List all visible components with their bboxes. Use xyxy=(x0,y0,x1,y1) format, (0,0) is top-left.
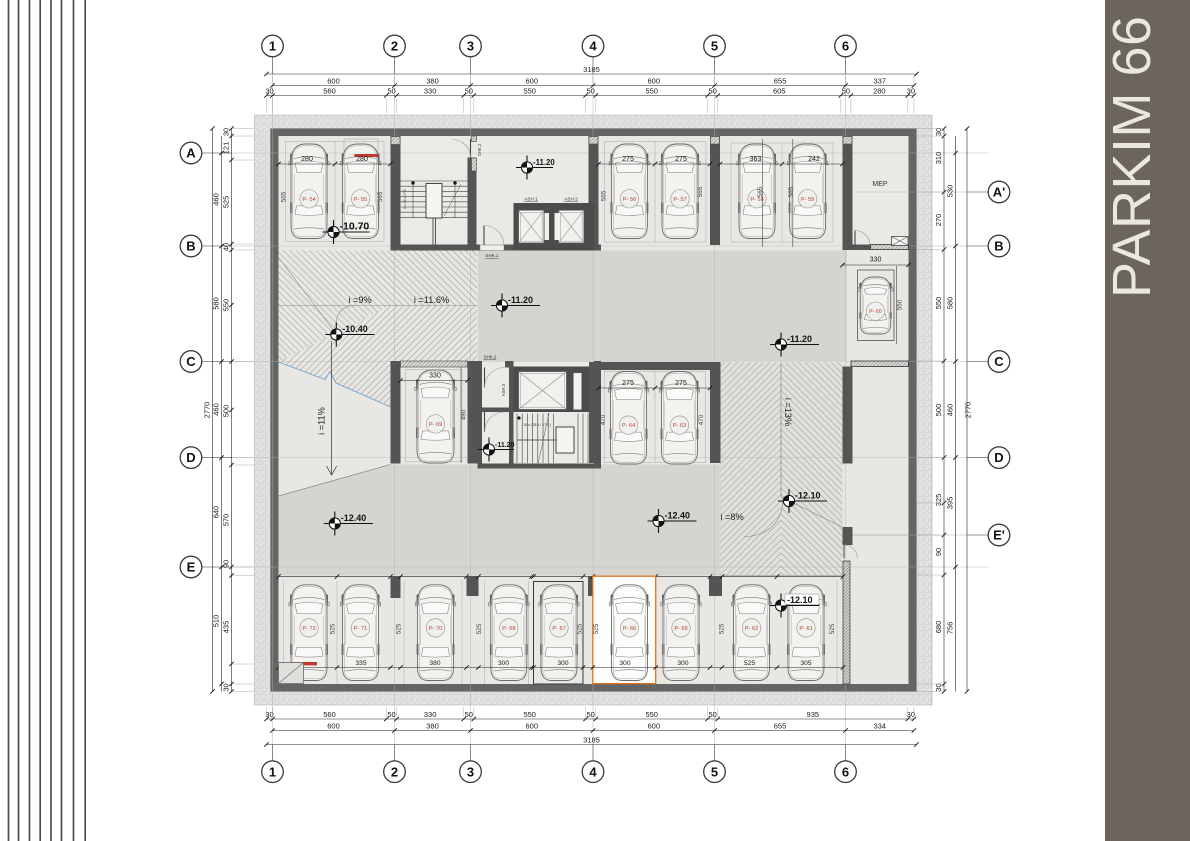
svg-text:1: 1 xyxy=(269,39,276,54)
svg-text:680: 680 xyxy=(934,621,943,634)
svg-text:500: 500 xyxy=(934,404,943,417)
svg-text:30: 30 xyxy=(907,87,915,96)
svg-text:560: 560 xyxy=(323,87,336,96)
svg-text:P- 59: P- 59 xyxy=(801,197,814,203)
svg-text:6: 6 xyxy=(842,39,849,54)
svg-text:380: 380 xyxy=(426,77,439,86)
svg-text:600: 600 xyxy=(525,77,538,86)
svg-text:550: 550 xyxy=(523,87,536,96)
svg-text:SHK.2: SHK.2 xyxy=(484,355,497,360)
svg-text:C: C xyxy=(186,354,196,369)
svg-text:560: 560 xyxy=(323,710,336,719)
svg-text:P- 71: P- 71 xyxy=(354,626,367,632)
svg-text:C: C xyxy=(994,354,1004,369)
svg-text:ASH 1: ASH 1 xyxy=(524,197,538,202)
svg-text:550: 550 xyxy=(934,297,943,310)
svg-text:2: 2 xyxy=(391,39,398,54)
svg-text:P- 70: P- 70 xyxy=(429,626,442,632)
svg-text:P- 57: P- 57 xyxy=(673,197,686,203)
svg-text:330: 330 xyxy=(424,710,437,719)
svg-text:P- 65: P- 65 xyxy=(674,626,687,632)
svg-text:530: 530 xyxy=(946,185,955,198)
svg-text:2: 2 xyxy=(391,764,398,779)
svg-text:600: 600 xyxy=(647,77,660,86)
svg-text:3185: 3185 xyxy=(583,65,600,74)
svg-text:-12.40: -12.40 xyxy=(665,511,691,521)
svg-text:-10.70: -10.70 xyxy=(340,221,370,233)
svg-text:121: 121 xyxy=(222,142,231,155)
svg-text:655: 655 xyxy=(774,722,787,731)
svg-text:P- 62: P- 62 xyxy=(745,626,758,632)
svg-text:435: 435 xyxy=(222,621,231,634)
svg-text:i =11.6%: i =11.6% xyxy=(414,295,449,305)
svg-text:5: 5 xyxy=(711,764,718,779)
svg-text:300: 300 xyxy=(677,660,688,667)
svg-text:i =9%: i =9% xyxy=(348,295,371,305)
svg-text:PARKIM 66: PARKIM 66 xyxy=(1102,15,1162,298)
svg-text:50: 50 xyxy=(709,710,717,719)
svg-text:525: 525 xyxy=(476,623,483,634)
svg-text:330: 330 xyxy=(870,257,882,264)
svg-text:A': A' xyxy=(993,185,1005,200)
svg-text:P- 63: P- 63 xyxy=(673,423,686,429)
svg-text:525: 525 xyxy=(593,623,600,634)
svg-text:580: 580 xyxy=(946,297,955,310)
svg-text:P- 64: P- 64 xyxy=(622,423,635,429)
svg-text:600: 600 xyxy=(647,722,660,731)
svg-text:4: 4 xyxy=(589,764,597,779)
svg-text:525: 525 xyxy=(829,623,836,634)
svg-text:525: 525 xyxy=(395,623,402,634)
svg-text:935: 935 xyxy=(807,710,820,719)
svg-text:565: 565 xyxy=(281,191,288,202)
svg-text:525: 525 xyxy=(577,623,584,634)
svg-text:565: 565 xyxy=(788,186,795,197)
svg-text:605: 605 xyxy=(773,87,786,96)
svg-text:6: 6 xyxy=(842,764,849,779)
svg-text:600: 600 xyxy=(327,77,340,86)
svg-text:337: 337 xyxy=(873,77,886,86)
svg-text:460: 460 xyxy=(946,404,955,417)
svg-text:B: B xyxy=(186,239,195,254)
svg-text:2770: 2770 xyxy=(203,402,212,419)
svg-text:P- 67: P- 67 xyxy=(552,626,565,632)
svg-text:-11.20: -11.20 xyxy=(495,442,515,449)
svg-text:275: 275 xyxy=(622,380,634,387)
svg-text:50: 50 xyxy=(387,710,395,719)
svg-text:P- 68: P- 68 xyxy=(502,626,515,632)
svg-text:500: 500 xyxy=(222,405,231,418)
svg-text:D: D xyxy=(994,450,1003,465)
svg-text:470: 470 xyxy=(698,414,705,425)
svg-text:460: 460 xyxy=(212,193,221,206)
svg-text:280: 280 xyxy=(301,156,313,163)
svg-text:-11.20: -11.20 xyxy=(787,334,812,344)
svg-text:280: 280 xyxy=(873,87,886,96)
svg-text:P- 60: P- 60 xyxy=(869,309,882,315)
svg-text:565: 565 xyxy=(697,186,704,197)
svg-text:275: 275 xyxy=(675,380,687,387)
svg-text:D: D xyxy=(186,450,195,465)
svg-text:50: 50 xyxy=(842,87,850,96)
svg-text:MEP: MEP xyxy=(872,181,888,188)
svg-text:550: 550 xyxy=(897,299,904,310)
svg-text:30: 30 xyxy=(934,683,943,691)
svg-text:280: 280 xyxy=(356,156,368,163)
svg-text:275: 275 xyxy=(622,156,634,163)
svg-text:3: 3 xyxy=(467,39,474,54)
svg-text:380: 380 xyxy=(426,722,439,731)
svg-text:4: 4 xyxy=(589,39,597,54)
svg-text:330: 330 xyxy=(429,373,441,380)
svg-text:90: 90 xyxy=(934,548,943,556)
svg-text:P- 54: P- 54 xyxy=(302,197,315,203)
svg-text:525: 525 xyxy=(744,660,755,667)
svg-text:40: 40 xyxy=(222,243,231,251)
svg-text:640: 640 xyxy=(212,506,221,519)
svg-text:756: 756 xyxy=(946,622,955,635)
svg-text:E: E xyxy=(187,560,196,575)
svg-text:310: 310 xyxy=(934,152,943,165)
svg-text:30: 30 xyxy=(265,87,273,96)
svg-text:50: 50 xyxy=(709,87,717,96)
svg-text:565: 565 xyxy=(377,191,384,202)
svg-text:565: 565 xyxy=(757,186,764,197)
svg-text:5: 5 xyxy=(711,39,718,54)
svg-text:50: 50 xyxy=(587,710,595,719)
svg-text:300: 300 xyxy=(557,660,568,667)
svg-text:P- 55: P- 55 xyxy=(354,197,367,203)
svg-text:P- 61: P- 61 xyxy=(799,626,812,632)
svg-text:30: 30 xyxy=(222,128,231,136)
svg-text:50: 50 xyxy=(387,87,395,96)
svg-text:P- 66: P- 66 xyxy=(623,626,636,632)
svg-text:270: 270 xyxy=(934,214,943,227)
svg-text:600: 600 xyxy=(525,722,538,731)
svg-text:335: 335 xyxy=(355,660,366,667)
svg-text:ASH 2: ASH 2 xyxy=(564,197,578,202)
svg-text:-12.10: -12.10 xyxy=(787,595,813,605)
svg-text:550: 550 xyxy=(523,710,536,719)
svg-text:50: 50 xyxy=(587,87,595,96)
svg-text:P- 72: P- 72 xyxy=(302,626,315,632)
svg-text:550: 550 xyxy=(222,299,231,312)
svg-text:395: 395 xyxy=(946,497,955,510)
svg-text:3185: 3185 xyxy=(583,736,600,745)
svg-text:305: 305 xyxy=(800,660,811,667)
svg-text:-10.40: -10.40 xyxy=(342,324,368,334)
svg-text:525: 525 xyxy=(330,623,337,634)
svg-text:50: 50 xyxy=(465,710,473,719)
svg-text:SHK.1: SHK.1 xyxy=(486,253,499,258)
svg-text:525: 525 xyxy=(719,623,726,634)
svg-text:i =11%: i =11% xyxy=(317,407,327,435)
svg-text:P- 56: P- 56 xyxy=(623,197,636,203)
svg-text:B: B xyxy=(994,239,1003,254)
svg-text:P- 69: P- 69 xyxy=(429,422,442,428)
svg-text:3: 3 xyxy=(467,764,474,779)
svg-text:-12.10: -12.10 xyxy=(795,491,821,501)
svg-text:490: 490 xyxy=(461,409,468,420)
svg-text:334: 334 xyxy=(873,722,886,731)
svg-text:300: 300 xyxy=(498,660,509,667)
svg-text:460: 460 xyxy=(212,403,221,416)
svg-text:470: 470 xyxy=(600,414,607,425)
svg-text:E': E' xyxy=(993,528,1005,543)
svg-text:565: 565 xyxy=(601,190,608,201)
svg-text:525: 525 xyxy=(222,196,231,209)
svg-text:-12.40: -12.40 xyxy=(341,513,367,523)
svg-text:242: 242 xyxy=(808,156,820,163)
svg-text:A: A xyxy=(186,146,196,161)
svg-text:30: 30 xyxy=(934,128,943,136)
svg-text:550: 550 xyxy=(645,710,658,719)
svg-text:i =13%: i =13% xyxy=(783,398,793,426)
svg-text:i =8%: i =8% xyxy=(720,512,743,522)
svg-text:30: 30 xyxy=(222,683,231,691)
svg-text:90: 90 xyxy=(222,560,231,568)
svg-text:-11.20: -11.20 xyxy=(533,158,555,167)
svg-text:2770: 2770 xyxy=(964,402,973,419)
svg-text:18 x ( 28.5 / 17.5 ): 18 x ( 28.5 / 17.5 ) xyxy=(523,423,551,427)
svg-text:1: 1 xyxy=(269,764,276,779)
svg-text:580: 580 xyxy=(212,297,221,310)
svg-text:655: 655 xyxy=(774,77,787,86)
svg-text:330: 330 xyxy=(424,87,437,96)
svg-text:ASH.3: ASH.3 xyxy=(501,383,506,396)
svg-text:600: 600 xyxy=(327,722,340,731)
svg-text:-11.20: -11.20 xyxy=(508,295,533,305)
svg-text:570: 570 xyxy=(222,514,231,527)
svg-text:50: 50 xyxy=(465,87,473,96)
svg-text:325: 325 xyxy=(934,494,943,507)
svg-text:550: 550 xyxy=(645,87,658,96)
svg-text:300: 300 xyxy=(619,660,630,667)
svg-text:SHK.2: SHK.2 xyxy=(477,143,482,156)
svg-text:8 x 28 x 17.5: 8 x 28 x 17.5 xyxy=(403,189,407,209)
svg-text:363: 363 xyxy=(750,156,762,163)
svg-text:275: 275 xyxy=(675,156,687,163)
svg-text:510: 510 xyxy=(212,615,221,628)
svg-text:380: 380 xyxy=(429,660,440,667)
